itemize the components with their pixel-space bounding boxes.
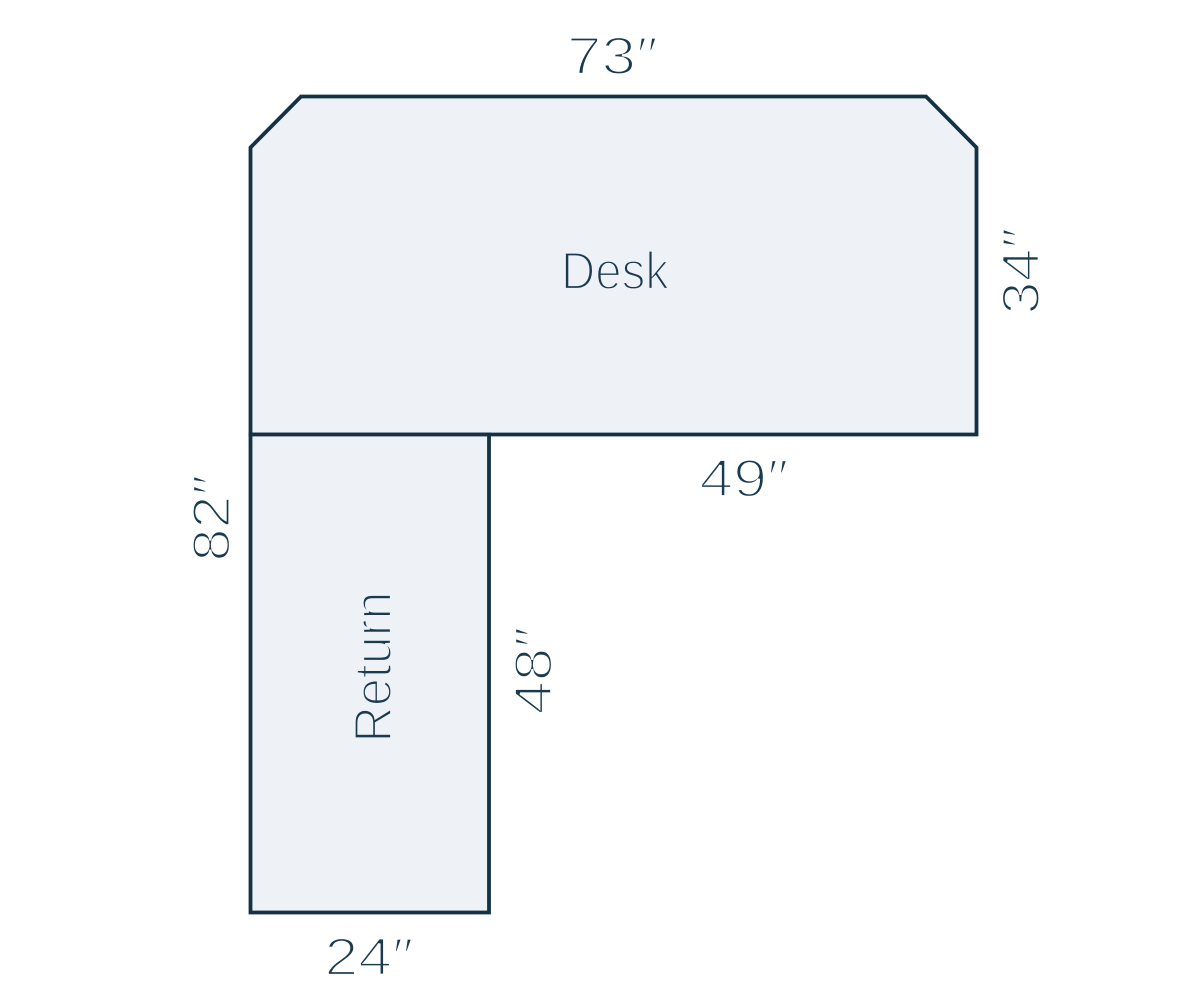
svg-text:49″: 49″ (700, 450, 789, 509)
svg-text:Desk: Desk (561, 242, 669, 301)
svg-text:48″: 48″ (505, 627, 564, 715)
svg-text:24″: 24″ (325, 928, 414, 987)
svg-text:82″: 82″ (183, 475, 242, 562)
svg-text:34″: 34″ (992, 228, 1051, 315)
svg-text:73″: 73″ (567, 27, 658, 86)
svg-text:Return: Return (344, 592, 403, 743)
